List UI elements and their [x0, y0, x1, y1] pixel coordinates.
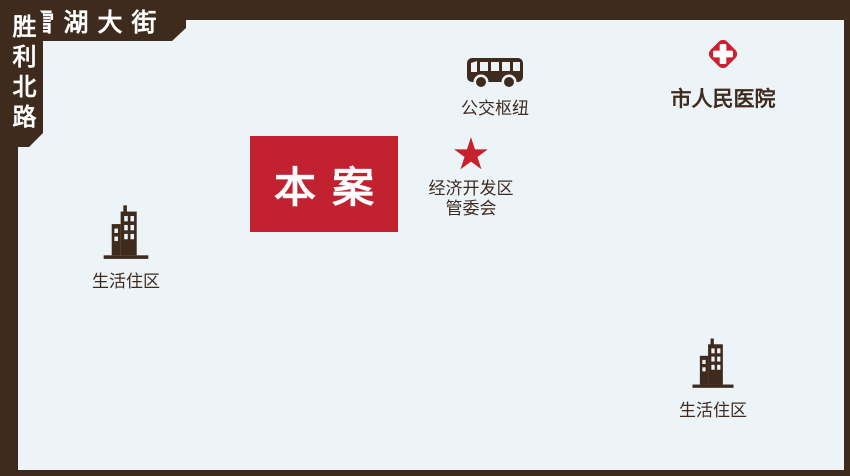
- residential-east-label: 生活住区: [679, 396, 747, 421]
- edz-label-line1: 经济开发区: [429, 179, 514, 199]
- project-site-box: 本案: [250, 136, 398, 232]
- bus-icon: [467, 56, 523, 90]
- edz-label-line2: 管委会: [429, 199, 514, 219]
- poi-hospital: 市人民医院: [650, 34, 796, 113]
- location-map: 本案 嬴牟西大街 雪湖大街 规划路 北坛北路 胜利北路 公交枢纽 市人民医院: [0, 0, 850, 476]
- bus-hub-label: 公交枢纽: [461, 94, 529, 119]
- star-icon: ★: [451, 133, 490, 177]
- street-label-shengli-north: 胜利北路: [0, 0, 43, 143]
- building-icon: [690, 336, 736, 392]
- poi-edz-committee: ★ 经济开发区 管委会: [408, 133, 534, 219]
- poi-residential-west: 生活住区: [66, 203, 186, 292]
- project-site-label: 本案: [274, 154, 390, 215]
- poi-residential-east: 生活住区: [653, 336, 773, 421]
- hospital-label: 市人民医院: [671, 83, 776, 113]
- building-icon: [101, 203, 151, 263]
- poi-bus-hub: 公交枢纽: [435, 56, 555, 119]
- edz-committee-label: 经济开发区 管委会: [429, 179, 514, 219]
- residential-west-label: 生活住区: [92, 267, 160, 292]
- hospital-cross-icon: [703, 34, 743, 74]
